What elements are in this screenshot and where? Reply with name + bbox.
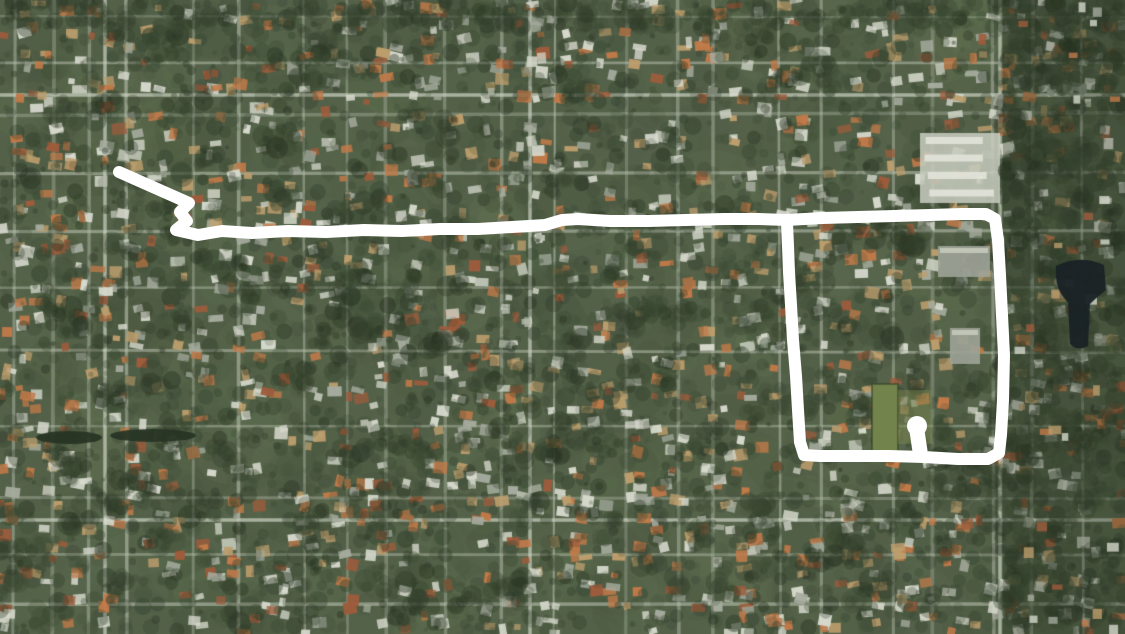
satellite-map-view	[0, 0, 1125, 634]
satellite-imagery[interactable]	[0, 0, 1125, 634]
